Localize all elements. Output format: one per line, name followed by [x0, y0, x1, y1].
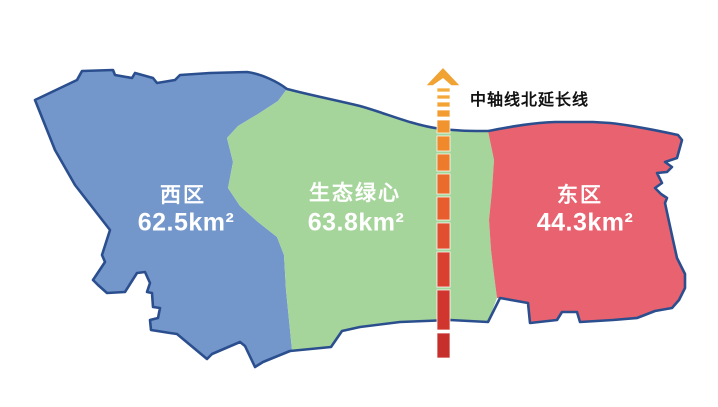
axis-dash-segment — [437, 95, 450, 99]
axis-dash-segment — [437, 102, 450, 107]
axis-dash-segment — [437, 223, 450, 249]
axis-dash-segment — [437, 136, 450, 151]
axis-dash-segment — [437, 110, 450, 117]
axis-dash-segment — [437, 333, 450, 358]
axis-dashed-line — [437, 88, 450, 358]
axis-dash-segment — [437, 252, 450, 287]
region-east-area: 44.3km² — [537, 209, 634, 238]
region-green-heart-area: 63.8km² — [308, 209, 405, 238]
region-east-name: 东区 — [557, 179, 603, 209]
region-green-heart-name: 生态绿心 — [309, 177, 401, 207]
axis-dash-segment — [437, 120, 450, 133]
axis-arrow-icon — [425, 67, 461, 86]
district-map: 西区 62.5km² 生态绿心 63.8km² 东区 44.3km² 中轴线北延… — [0, 0, 718, 407]
axis-dash-segment — [437, 154, 450, 171]
axis-dash-segment — [437, 290, 450, 330]
axis-label: 中轴线北延长线 — [470, 86, 589, 110]
axis-dash-segment — [437, 174, 450, 194]
axis-dash-segment — [437, 197, 450, 220]
axis-dash-segment — [437, 88, 450, 92]
region-west-name: 西区 — [160, 179, 206, 209]
region-west-area: 62.5km² — [138, 209, 235, 238]
